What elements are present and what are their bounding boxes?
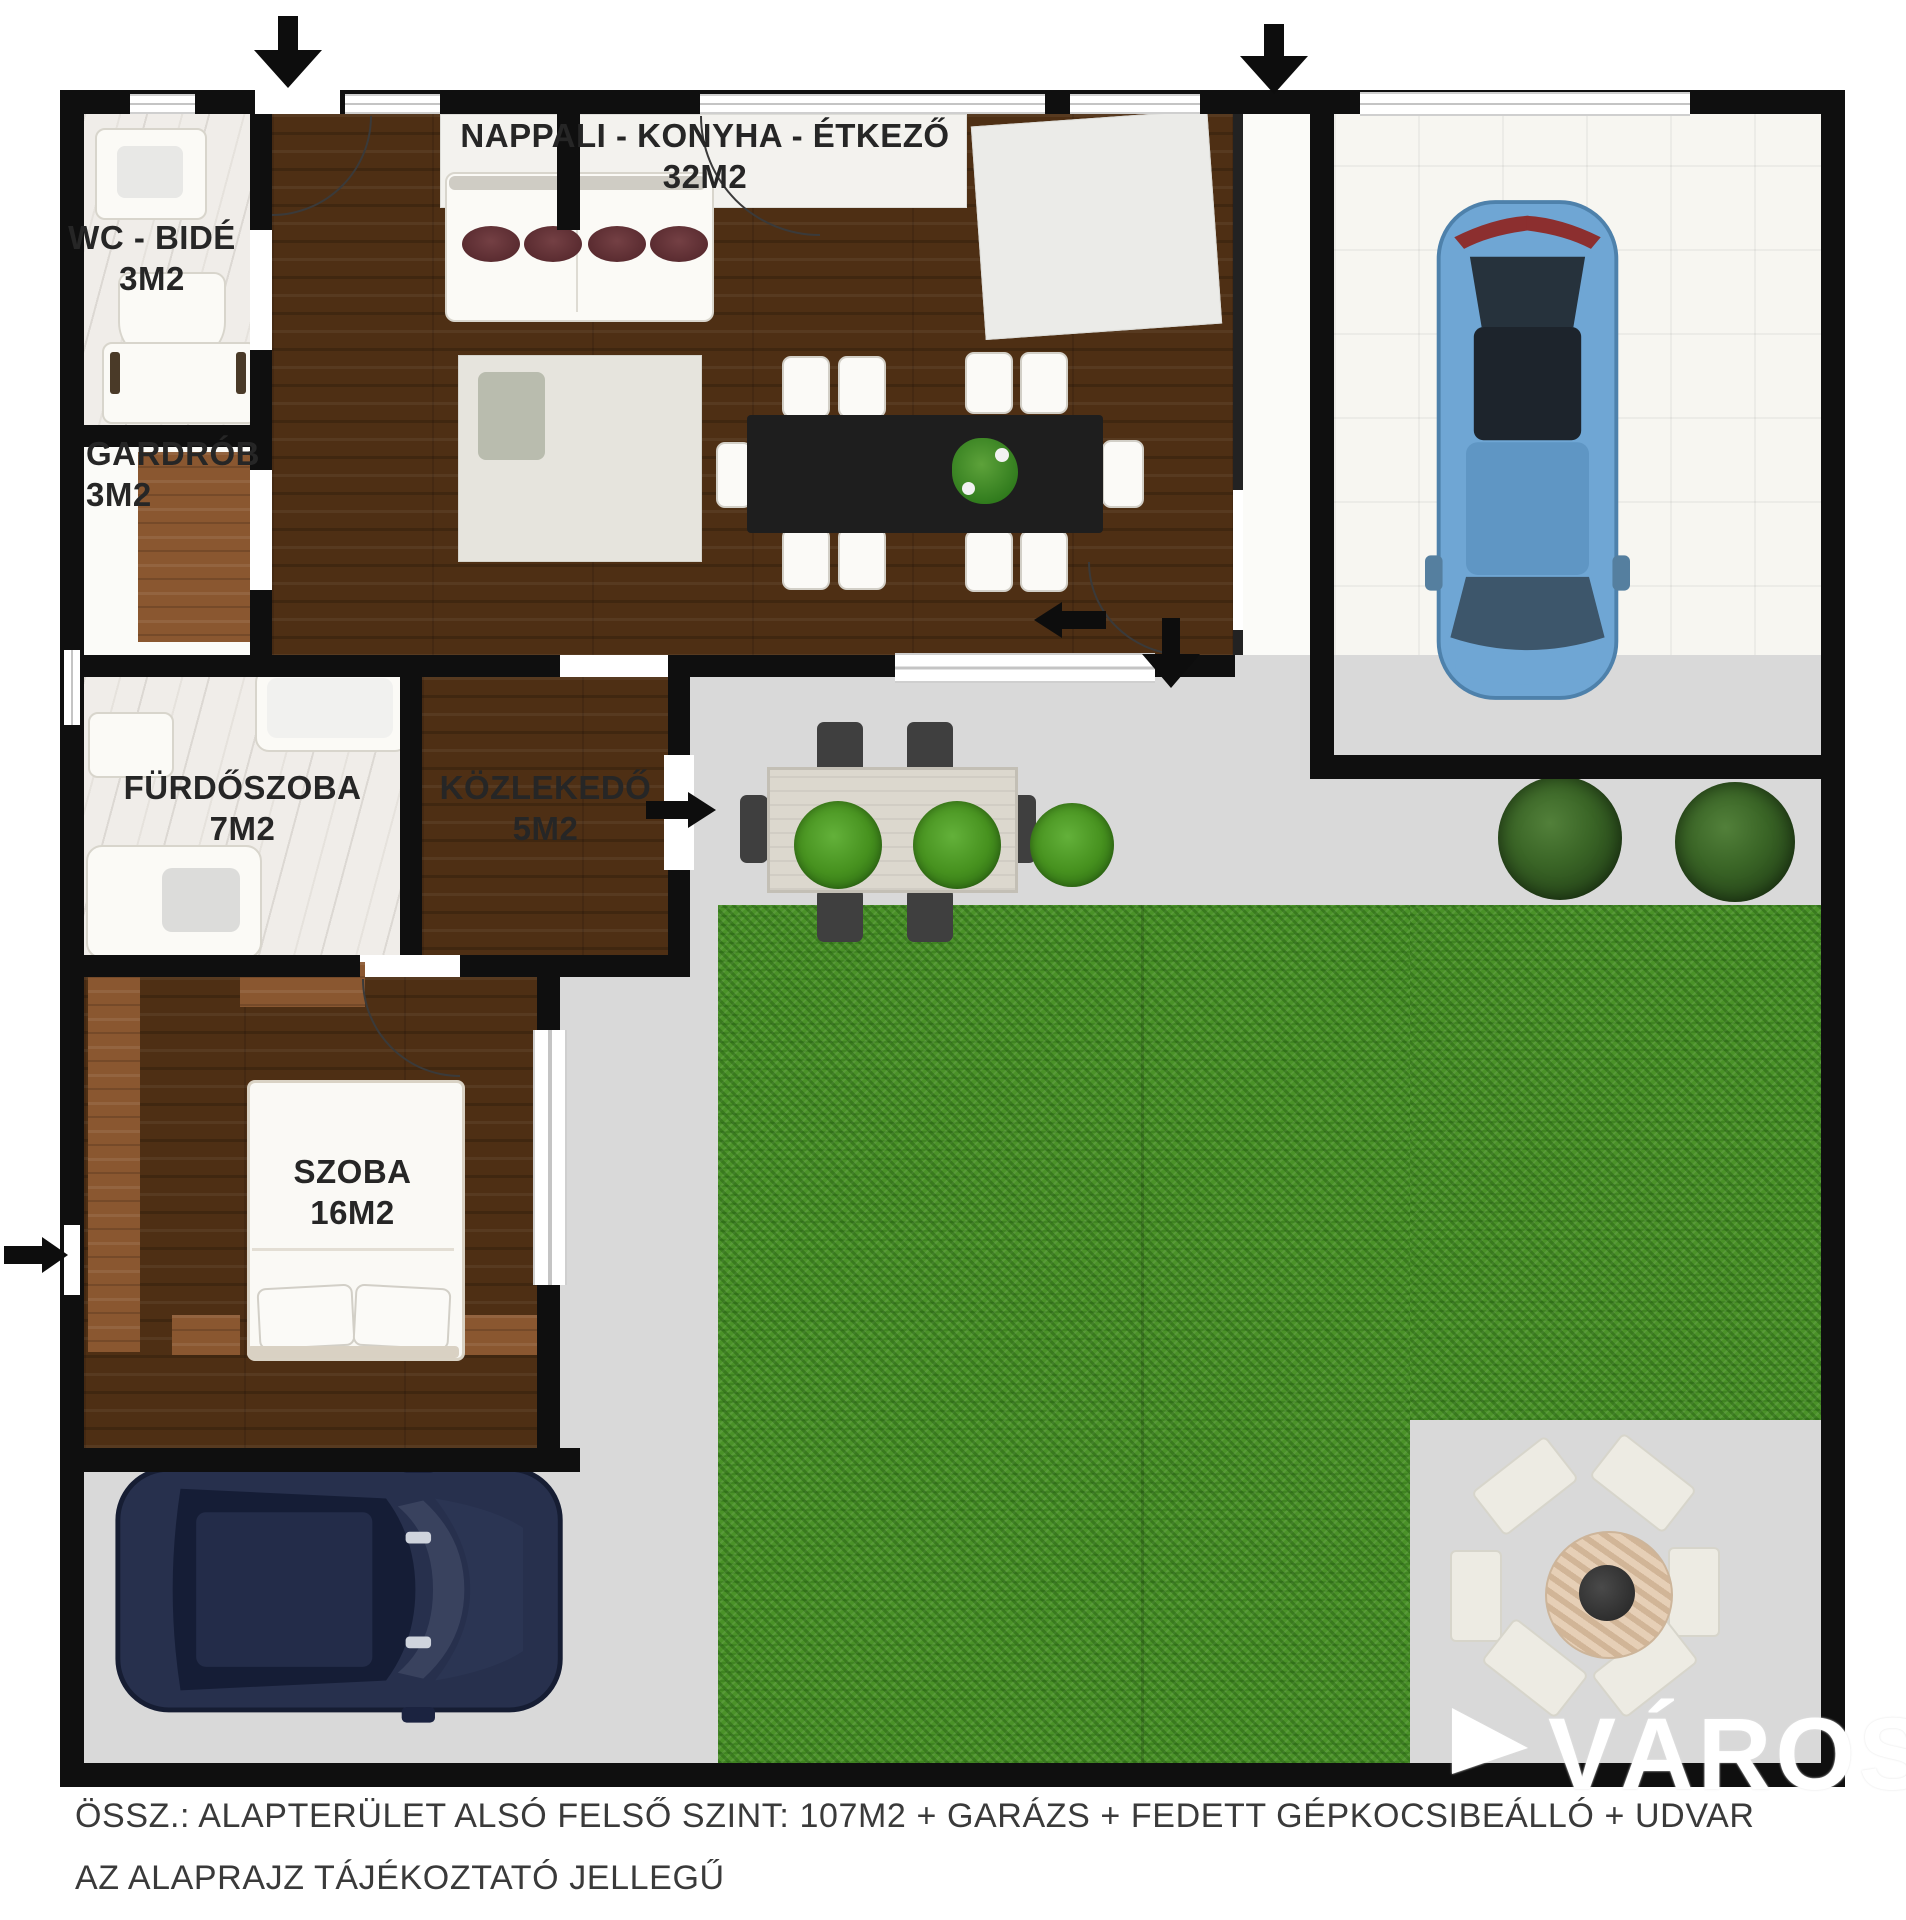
side-arrow-right-head-icon [42, 1237, 68, 1273]
label-wc-name: WC - BIDÉ [62, 218, 242, 259]
watermark-text: VÁROS [1548, 1696, 1906, 1813]
rug-throw [478, 372, 545, 460]
bush [913, 801, 1001, 889]
tree [1675, 782, 1795, 902]
bed-pillow [256, 1284, 355, 1351]
floor-plan-page: NAPPALI - KONYHA - ÉTKEZŐ 32M2 WC - BIDÉ… [0, 0, 1906, 1920]
label-bathroom: FÜRDŐSZOBA 7M2 [95, 768, 390, 850]
dining-chair [1020, 530, 1068, 592]
entrance-arrow-top-left-icon [278, 16, 298, 52]
wc-sink-basin [117, 146, 183, 198]
bedroom-window [533, 1030, 567, 1285]
sofa-pillow [524, 226, 582, 262]
entrance-door-opening [255, 90, 340, 114]
bush [1030, 803, 1114, 887]
wall-mid-left [60, 655, 560, 677]
kitchen-island [971, 110, 1222, 340]
table-plant-flower [995, 448, 1009, 462]
label-living-room-name: NAPPALI - KONYHA - ÉTKEZŐ [445, 116, 965, 157]
bed-blanket-fold [252, 1248, 454, 1251]
bed-pillow [352, 1284, 451, 1351]
patio-arrow-down-head-icon [1142, 654, 1200, 688]
label-bathroom-area: 7M2 [95, 809, 390, 850]
table-plant-flower [962, 482, 975, 495]
bathroom-sink-basin [267, 678, 393, 738]
floor-entry-strip [1235, 114, 1310, 655]
label-hallway: KÖZLEKEDŐ 5M2 [428, 768, 663, 850]
firepit-center [1579, 1565, 1635, 1621]
sofa-pillow [462, 226, 520, 262]
dining-chair [1020, 352, 1068, 414]
lawn-left [718, 905, 1410, 1763]
patio-chair [740, 795, 768, 863]
label-wc-area: 3M2 [62, 259, 242, 300]
bedroom-bench [460, 1315, 538, 1355]
label-living-room-area: 32M2 [445, 157, 965, 198]
door-opening-wc [250, 230, 272, 350]
wall-hall-right-upper [668, 655, 690, 755]
car-garage [1425, 195, 1630, 705]
tree [1498, 776, 1622, 900]
label-bedroom: SZOBA 16M2 [250, 1152, 455, 1234]
wc-vanity [102, 342, 258, 424]
firepit-seat [1450, 1550, 1502, 1642]
dining-chair [965, 352, 1013, 414]
label-bathroom-name: FÜRDŐSZOBA [95, 768, 390, 809]
patio-chair [907, 888, 953, 942]
lawn-seam [1141, 905, 1144, 1763]
car-carport [112, 1455, 572, 1725]
side-arrow-right-icon [4, 1246, 42, 1264]
wall-bedroom-top-right [460, 955, 690, 977]
bath-mat [162, 868, 240, 932]
bed-headboard [247, 1346, 459, 1358]
window-living-large [700, 94, 1045, 114]
dining-chair [965, 530, 1013, 592]
patio-sliding-door [895, 653, 1155, 683]
bedroom-wardrobe [88, 962, 140, 1352]
wall-bedroom-bottom [60, 1448, 580, 1472]
patio-chair [817, 888, 863, 942]
garage-arrow-left-head-icon [1034, 602, 1062, 638]
label-hallway-name: KÖZLEKEDŐ [428, 768, 663, 809]
door-opening-entry [1233, 490, 1243, 630]
wall-bedroom-top-left [60, 955, 360, 977]
garage-door [1360, 92, 1690, 116]
dining-chair [1102, 440, 1144, 508]
label-wardrobe-name: GARDRÓB [86, 434, 286, 475]
label-wardrobe: GARDRÓB 3M2 [86, 434, 286, 516]
lawn-right [1410, 905, 1821, 1420]
entrance-arrow-top-right-icon [1264, 24, 1284, 58]
patio-arrow-down-icon [1162, 618, 1180, 656]
footer-summary: ÖSSZ.: ALAPTERÜLET ALSÓ FELSŐ SZINT: 107… [75, 1797, 1755, 1836]
label-bedroom-name: SZOBA [250, 1152, 455, 1193]
window-living-small [345, 94, 440, 114]
window-wc [130, 94, 195, 114]
label-living-room: NAPPALI - KONYHA - ÉTKEZŐ 32M2 [445, 116, 965, 198]
entrance-arrow-top-left-head-icon [254, 50, 322, 88]
wall-exterior-right [1821, 90, 1845, 1787]
wall-hall-right-lower [668, 870, 690, 955]
label-bedroom-area: 16M2 [250, 1193, 455, 1234]
wall-mid-center [680, 655, 895, 677]
sofa-pillow [650, 226, 708, 262]
dining-table [747, 415, 1103, 533]
footer-disclaimer: AZ ALAPRAJZ TÁJÉKOZTATÓ JELLEGŰ [75, 1859, 725, 1898]
label-hallway-area: 5M2 [428, 809, 663, 850]
label-wardrobe-area: 3M2 [86, 475, 286, 516]
wall-exterior-left [60, 90, 84, 1787]
table-plant [952, 438, 1018, 504]
hall-arrow-right-head-icon [688, 792, 716, 828]
wall-garage-left [1310, 114, 1334, 755]
wall-bedroom-right-upper [537, 977, 560, 1030]
vanity-candle [236, 352, 246, 394]
bush [794, 801, 882, 889]
sofa-pillow [588, 226, 646, 262]
garage-arrow-left-icon [1062, 611, 1106, 629]
window-bathroom [64, 650, 80, 725]
label-wc: WC - BIDÉ 3M2 [62, 218, 242, 300]
dining-chair [782, 528, 830, 590]
vanity-candle [110, 352, 120, 394]
window-entry [1070, 94, 1200, 114]
bedroom-bench [172, 1315, 240, 1355]
dining-chair [782, 356, 830, 418]
entrance-arrow-top-right-head-icon [1240, 56, 1308, 94]
wall-bedroom-right-lower [537, 1285, 560, 1448]
wall-bath-hall-divider [400, 677, 422, 955]
watermark-logo-icon [1452, 1708, 1528, 1774]
dining-chair [838, 528, 886, 590]
firepit-seat [1668, 1547, 1720, 1637]
dining-chair [838, 356, 886, 418]
wall-garage-bottom [1310, 755, 1845, 779]
